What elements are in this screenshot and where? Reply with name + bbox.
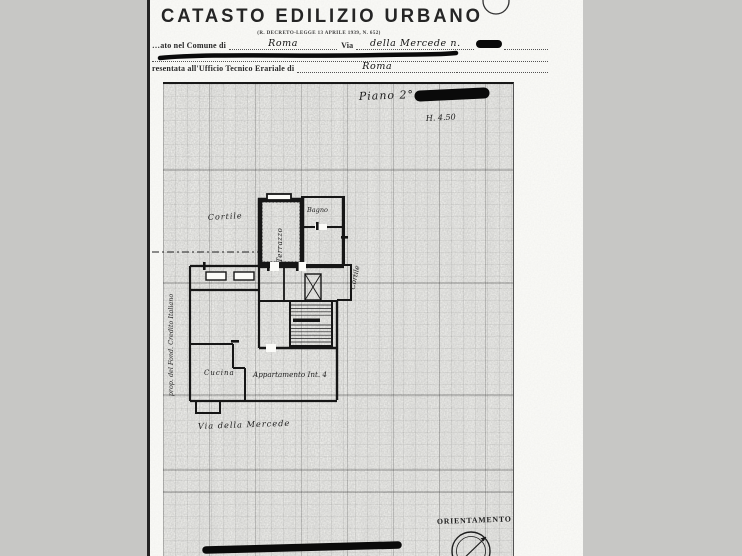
cucina-label: Cucina (204, 369, 235, 377)
window-slot-2 (234, 272, 254, 280)
redaction-bar-top (420, 93, 484, 96)
bagno-label: Bagno (306, 206, 328, 214)
stair-landing-bar (293, 319, 320, 323)
window-slot-1 (206, 272, 226, 280)
floor-label: Piano 2° (358, 88, 415, 103)
scanned-document: CATASTO EDILIZIO URBANO (R. DECRETO-LEGG… (0, 0, 742, 556)
redaction-bar-bottom (206, 545, 398, 550)
owner-label: prop. del Fond. Credito Italiano (167, 294, 175, 397)
height-label: H. 4.50 (425, 112, 456, 123)
terrazzo-label: Terrazzo (276, 228, 284, 263)
floor-plan-drawing: Piano 2° H. 4.50 (0, 0, 742, 556)
apartment-label: Appartamento Int. 4 (252, 370, 327, 379)
terrazzo-parapet (267, 194, 291, 200)
cortile-left-label: Cortile (208, 211, 243, 222)
door-gap-stairs (266, 344, 276, 352)
